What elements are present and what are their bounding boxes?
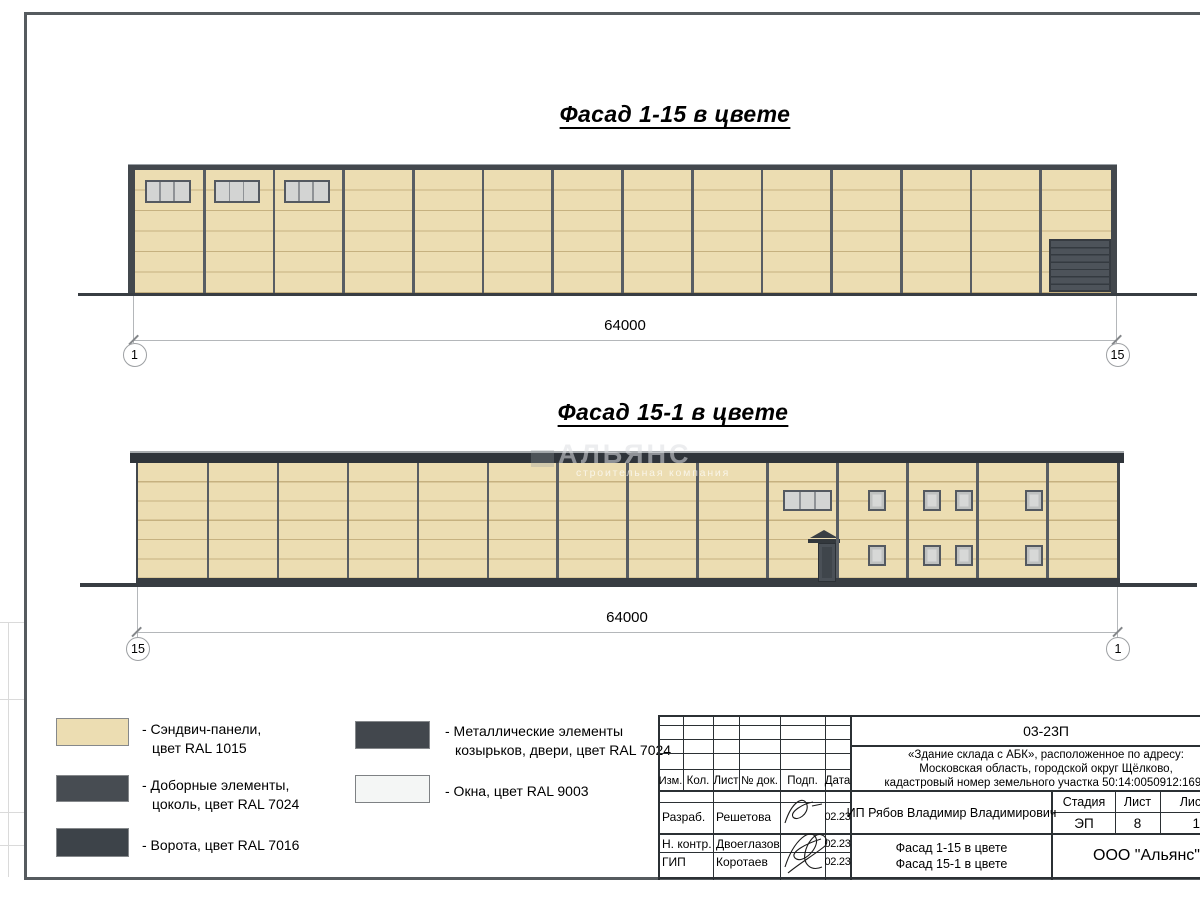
date-nkontr: 02.23 bbox=[825, 835, 850, 853]
axis-label: 1 bbox=[131, 348, 138, 362]
name-razrab: Решетова bbox=[716, 810, 771, 824]
role-razrab: Разраб. bbox=[662, 810, 705, 824]
square-window bbox=[923, 490, 941, 511]
client-name: ИП Рябов Владимир Владимирович bbox=[852, 792, 1051, 833]
corner-flashing-left bbox=[128, 165, 135, 293]
sectional-gate bbox=[1049, 239, 1111, 292]
window-mullion bbox=[243, 182, 245, 201]
stage-header: Стадия bbox=[1053, 792, 1115, 811]
corner-flashing-left bbox=[136, 463, 139, 578]
sheets-total: 17 bbox=[1160, 813, 1200, 833]
square-window bbox=[955, 490, 973, 511]
drawing-sheet: Фасад 1-15 в цвете 64000 1 15 Фасад 15-1… bbox=[0, 0, 1200, 900]
facade-15-1-title: Фасад 15-1 в цвете bbox=[463, 399, 883, 426]
window-mullion bbox=[799, 492, 801, 509]
ribbon-window bbox=[214, 180, 260, 203]
panel-joint bbox=[347, 463, 350, 578]
legend-line: - Металлические элементы bbox=[445, 722, 671, 741]
dimension-line bbox=[137, 632, 1118, 633]
address-line: «Здание склада с АБК», расположенное по … bbox=[852, 748, 1200, 762]
col-header-data: Дата bbox=[825, 772, 850, 790]
sheets-header: Листов bbox=[1160, 792, 1200, 811]
panel-joint bbox=[691, 170, 694, 293]
subject-line: Фасад 15-1 в цвете bbox=[896, 856, 1008, 872]
panel-joint bbox=[551, 170, 554, 293]
legend-swatch-gates bbox=[56, 828, 129, 857]
dimension-label: 64000 bbox=[582, 609, 672, 626]
stamp-line bbox=[658, 739, 850, 740]
panel-joint bbox=[277, 463, 280, 578]
window-mullion bbox=[814, 492, 816, 509]
legend-label-gates: - Ворота, цвет RAL 7016 bbox=[142, 836, 299, 855]
extension-line bbox=[133, 296, 134, 343]
ribbon-window bbox=[783, 490, 832, 511]
col-header-ndok: № док. bbox=[739, 772, 780, 790]
stamp-line bbox=[713, 715, 714, 880]
panel-joint bbox=[1039, 170, 1042, 293]
panel-joint bbox=[342, 170, 345, 293]
panel-joint bbox=[556, 463, 559, 578]
square-window bbox=[1025, 490, 1043, 511]
watermark-name: АЛЬЯНС bbox=[558, 439, 692, 470]
panel-joint bbox=[906, 463, 909, 578]
margin-line bbox=[8, 622, 9, 877]
panel-joint bbox=[976, 463, 979, 578]
margin-line bbox=[0, 622, 24, 623]
axis-circle-1: 1 bbox=[1106, 637, 1130, 661]
legend-line: - Доборные элементы, bbox=[142, 776, 299, 795]
legend-label-trim-elements: - Доборные элементы, цоколь, цвет RAL 70… bbox=[142, 776, 299, 813]
facade-1-15-title-text: Фасад 1-15 в цвете bbox=[560, 101, 791, 127]
sheet-header: Лист bbox=[1115, 792, 1160, 811]
document-code: 03-23П bbox=[852, 717, 1200, 745]
square-window bbox=[955, 545, 973, 566]
panel-joint bbox=[1046, 463, 1049, 578]
panel-joint bbox=[412, 170, 415, 293]
facade-1-15-drawing bbox=[128, 165, 1117, 293]
panel-joint bbox=[273, 170, 276, 293]
margin-line bbox=[0, 812, 24, 813]
margin-line bbox=[0, 699, 24, 700]
legend-line: козырьков, двери, цвет RAL 7024 bbox=[445, 741, 671, 760]
square-window bbox=[1025, 545, 1043, 566]
axis-circle-1: 1 bbox=[123, 343, 147, 367]
legend-label-windows: - Окна, цвет RAL 9003 bbox=[445, 782, 589, 801]
square-window bbox=[868, 490, 886, 511]
axis-circle-15: 15 bbox=[126, 637, 150, 661]
address-line: Московская область, городской округ Щёлк… bbox=[852, 762, 1200, 776]
margin-line bbox=[0, 845, 24, 846]
sheet-number: 8 bbox=[1115, 813, 1160, 833]
panel-joint bbox=[766, 463, 769, 578]
legend-swatch-sandwich-panels bbox=[56, 718, 129, 746]
frame-left-line bbox=[24, 12, 27, 880]
panel-joint bbox=[417, 463, 420, 578]
window-mullion bbox=[173, 182, 175, 201]
legend-swatch-windows bbox=[355, 775, 430, 803]
panel-joint bbox=[621, 170, 624, 293]
panel-joint bbox=[482, 170, 485, 293]
window-mullion bbox=[159, 182, 161, 201]
date-gip: 02.23 bbox=[825, 853, 850, 871]
legend-line: цоколь, цвет RAL 7024 bbox=[142, 795, 299, 814]
axis-circle-15: 15 bbox=[1106, 343, 1130, 367]
stage-value: ЭП bbox=[1053, 813, 1115, 833]
entrance-canopy-gable bbox=[810, 530, 838, 538]
col-header-podp: Подп. bbox=[780, 772, 825, 790]
panel-joint bbox=[626, 463, 629, 578]
sheet-subject: Фасад 1-15 в цвете Фасад 15-1 в цвете bbox=[852, 835, 1051, 877]
watermark-logo-icon bbox=[531, 450, 554, 467]
panel-joint bbox=[900, 170, 903, 293]
col-header-list: Лист bbox=[713, 772, 739, 790]
panel-joint bbox=[970, 170, 973, 293]
window-mullion bbox=[298, 182, 300, 201]
ribbon-window bbox=[284, 180, 330, 203]
facade-1-15-title: Фасад 1-15 в цвете bbox=[465, 101, 885, 128]
ground-line bbox=[80, 583, 1197, 587]
frame-top-line bbox=[24, 12, 1200, 15]
window-mullion bbox=[229, 182, 231, 201]
square-window bbox=[868, 545, 886, 566]
title-block: 03-23П «Здание склада с АБК», расположен… bbox=[658, 715, 1200, 880]
col-header-izm: Изм. bbox=[658, 772, 683, 790]
stamp-border bbox=[658, 877, 1200, 879]
signature-gip bbox=[780, 823, 828, 877]
ground-line bbox=[78, 293, 1197, 297]
legend-label-sandwich-panels: - Сэндвич-панели, цвет RAL 1015 bbox=[142, 720, 261, 757]
panel-joint bbox=[207, 463, 210, 578]
subject-line: Фасад 1-15 в цвете bbox=[896, 840, 1008, 856]
square-window bbox=[923, 545, 941, 566]
dimension-line bbox=[133, 340, 1117, 341]
col-header-kol: Кол. bbox=[683, 772, 713, 790]
legend-label-metal-elements: - Металлические элементы козырьков, двер… bbox=[445, 722, 671, 759]
facade-15-1-title-text: Фасад 15-1 в цвете bbox=[558, 399, 789, 425]
axis-label: 1 bbox=[1115, 642, 1122, 656]
axis-label: 15 bbox=[131, 642, 145, 656]
legend-swatch-trim-elements bbox=[56, 775, 129, 802]
window-mullion bbox=[312, 182, 314, 201]
legend-line: - Ворота, цвет RAL 7016 bbox=[142, 836, 299, 855]
stamp-line bbox=[850, 745, 1200, 747]
corner-flashing-right bbox=[1117, 463, 1120, 578]
corner-flashing-right bbox=[1111, 165, 1118, 293]
stamp-line bbox=[658, 769, 850, 770]
panel-joint bbox=[761, 170, 764, 293]
address-line: кадастровый номер земельного участка 50:… bbox=[852, 776, 1200, 790]
legend-line: цвет RAL 1015 bbox=[142, 739, 261, 758]
axis-label: 15 bbox=[1111, 348, 1125, 362]
panel-joint bbox=[203, 170, 206, 293]
legend-swatch-metal-elements bbox=[355, 721, 430, 749]
dimension-label: 64000 bbox=[580, 317, 670, 334]
role-nkontr: Н. контр. bbox=[662, 837, 712, 851]
panel-joint bbox=[836, 463, 839, 578]
role-gip: ГИП bbox=[662, 855, 686, 869]
extension-line bbox=[1116, 296, 1117, 343]
ribbon-window bbox=[145, 180, 191, 203]
name-gip: Коротаев bbox=[716, 855, 768, 869]
company-name: ООО "Альянс" bbox=[1053, 835, 1200, 877]
stamp-line bbox=[658, 753, 850, 754]
watermark-tagline: строительная компания bbox=[576, 467, 730, 479]
entrance-door bbox=[818, 543, 836, 582]
panel-joint bbox=[487, 463, 490, 578]
stamp-line bbox=[658, 725, 850, 726]
panel-joint bbox=[830, 170, 833, 293]
project-address: «Здание склада с АБК», расположенное по … bbox=[852, 748, 1200, 790]
legend-line: - Окна, цвет RAL 9003 bbox=[445, 782, 589, 801]
name-nkontr: Двоеглазов bbox=[716, 837, 780, 851]
panel-joint bbox=[696, 463, 699, 578]
legend-line: - Сэндвич-панели, bbox=[142, 720, 261, 739]
